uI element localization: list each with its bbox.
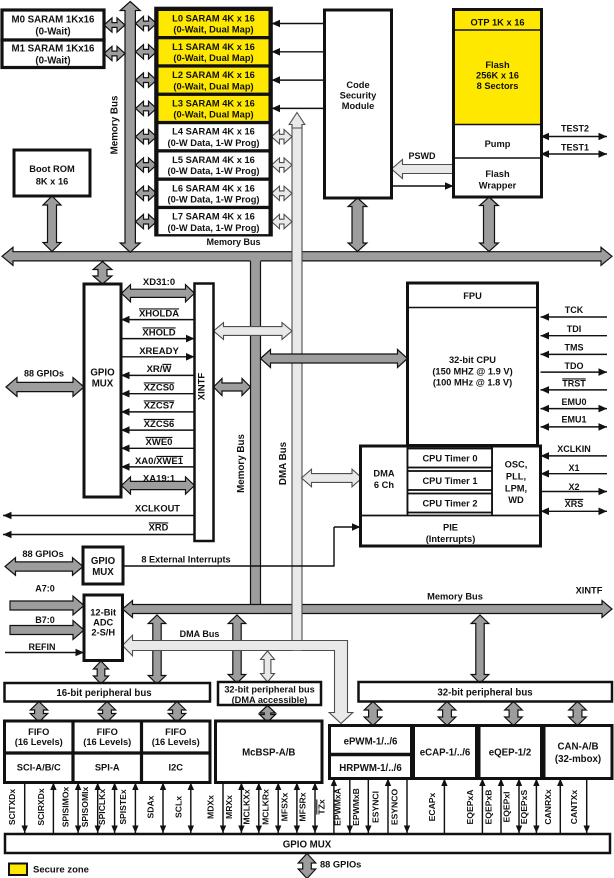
svg-text:(0-Wait): (0-Wait) xyxy=(35,55,70,66)
svg-text:Flash: Flash xyxy=(485,169,510,179)
svg-text:XA19:1: XA19:1 xyxy=(143,474,176,485)
svg-text:Boot ROM: Boot ROM xyxy=(29,164,75,174)
svg-text:(0-Wait, Dual Map): (0-Wait, Dual Map) xyxy=(173,25,253,35)
svg-text:(0-Wait, Dual Map): (0-Wait, Dual Map) xyxy=(173,81,253,91)
svg-text:88 GPIOs: 88 GPIOs xyxy=(24,369,64,379)
svg-text:GPIO: GPIO xyxy=(91,556,116,567)
svg-text:eQEP-1/2: eQEP-1/2 xyxy=(489,748,532,759)
svg-text:MCLKXx: MCLKXx xyxy=(241,789,251,825)
svg-text:ESYNCO: ESYNCO xyxy=(390,789,400,826)
svg-text:(0-W Data, 1-W Prog): (0-W Data, 1-W Prog) xyxy=(168,166,260,176)
svg-text:L1 SARAM 4K x 16: L1 SARAM 4K x 16 xyxy=(172,42,255,52)
svg-text:L7 SARAM 4K x 16: L7 SARAM 4K x 16 xyxy=(172,212,255,222)
svg-text:Memory Bus: Memory Bus xyxy=(236,434,247,493)
svg-text:A7:0: A7:0 xyxy=(35,584,55,594)
svg-text:MFSXx: MFSXx xyxy=(279,792,289,821)
svg-text:Flash: Flash xyxy=(485,60,510,70)
svg-text:(0-W Data, 1-W Prog): (0-W Data, 1-W Prog) xyxy=(168,138,260,148)
svg-text:(0-W Data, 1-W Prog): (0-W Data, 1-W Prog) xyxy=(168,195,260,205)
svg-text:SPISTEx: SPISTEx xyxy=(118,789,128,825)
svg-text:XCLKOUT: XCLKOUT xyxy=(135,504,180,514)
svg-text:OSC,: OSC, xyxy=(505,459,528,469)
svg-text:8 Sectors: 8 Sectors xyxy=(477,81,519,91)
svg-text:X1: X1 xyxy=(568,463,579,473)
svg-text:88 GPIOs: 88 GPIOs xyxy=(320,860,361,870)
svg-text:TDO: TDO xyxy=(565,361,584,371)
svg-text:XWE0: XWE0 xyxy=(146,437,173,448)
svg-text:LPM,: LPM, xyxy=(505,483,527,493)
svg-text:FIFO: FIFO xyxy=(28,727,49,737)
svg-text:CPU Timer 0: CPU Timer 0 xyxy=(422,453,477,463)
svg-text:REFIN: REFIN xyxy=(29,642,56,652)
svg-text:PIE: PIE xyxy=(443,522,458,532)
svg-text:EMU1: EMU1 xyxy=(561,415,586,425)
svg-text:ESYNCI: ESYNCI xyxy=(371,791,381,823)
svg-text:8K x 16: 8K x 16 xyxy=(36,176,69,186)
svg-text:32-bit peripheral bus: 32-bit peripheral bus xyxy=(224,685,314,695)
svg-text:(0-Wait): (0-Wait) xyxy=(35,26,70,37)
svg-text:L5 SARAM 4K x 16: L5 SARAM 4K x 16 xyxy=(172,155,255,165)
svg-text:16-bit peripheral bus: 16-bit peripheral bus xyxy=(56,688,151,699)
svg-text:FIFO: FIFO xyxy=(97,727,118,737)
svg-text:EQEPxS: EQEPxS xyxy=(519,790,529,825)
svg-text:XZCS0: XZCS0 xyxy=(144,383,175,394)
svg-text:2-S/H: 2-S/H xyxy=(91,628,115,638)
svg-text:FPU: FPU xyxy=(463,291,482,301)
svg-text:XHOLDA: XHOLDA xyxy=(139,309,179,320)
svg-text:Memory Bus: Memory Bus xyxy=(110,95,121,154)
svg-text:DMA Bus: DMA Bus xyxy=(180,629,220,639)
svg-text:HRPWM-1/../6: HRPWM-1/../6 xyxy=(339,763,402,774)
svg-text:6 Ch: 6 Ch xyxy=(374,480,394,490)
svg-text:(16 Levels): (16 Levels) xyxy=(152,737,200,747)
svg-text:GPIO MUX: GPIO MUX xyxy=(283,839,332,850)
svg-text:ADC: ADC xyxy=(93,618,113,628)
svg-text:EPWMxB: EPWMxB xyxy=(351,788,361,826)
svg-text:ECAPx: ECAPx xyxy=(427,792,437,821)
svg-text:FIFO: FIFO xyxy=(165,727,186,737)
svg-text:PLL,: PLL, xyxy=(506,471,526,481)
svg-text:PSWD: PSWD xyxy=(409,151,437,161)
svg-text:OTP 1K x 16: OTP 1K x 16 xyxy=(470,17,524,27)
svg-text:XRS: XRS xyxy=(565,499,584,509)
svg-text:ePWM-1/../6: ePWM-1/../6 xyxy=(344,737,398,748)
svg-text:EQEPxA: EQEPxA xyxy=(465,790,475,825)
svg-text:(100 MHz @ 1.8 V): (100 MHz @ 1.8 V) xyxy=(433,378,512,388)
svg-text:Code: Code xyxy=(346,80,369,90)
svg-text:(DMA accessible): (DMA accessible) xyxy=(232,695,308,705)
svg-text:MDXx: MDXx xyxy=(206,795,216,819)
svg-text:SCITXDx: SCITXDx xyxy=(7,789,17,826)
svg-text:32-bit CPU: 32-bit CPU xyxy=(449,355,496,365)
svg-text:SPISIMOx: SPISIMOx xyxy=(61,786,71,827)
svg-text:(0-Wait, Dual Map): (0-Wait, Dual Map) xyxy=(173,53,253,63)
svg-text:XINTF: XINTF xyxy=(576,586,603,596)
svg-text:DMA: DMA xyxy=(373,468,394,478)
svg-text:L6 SARAM 4K x 16: L6 SARAM 4K x 16 xyxy=(172,183,255,193)
svg-text:8 External Interrupts: 8 External Interrupts xyxy=(141,555,230,565)
svg-text:XR/W: XR/W xyxy=(147,364,172,375)
svg-text:SCLx: SCLx xyxy=(173,796,183,818)
svg-text:XA0/XWE1: XA0/XWE1 xyxy=(135,456,184,467)
svg-text:88 GPIOs: 88 GPIOs xyxy=(22,549,63,559)
svg-text:XRD: XRD xyxy=(149,523,169,533)
svg-text:EPWMxA: EPWMxA xyxy=(332,788,342,826)
svg-text:CANTXx: CANTXx xyxy=(569,790,579,825)
svg-text:XZCS6: XZCS6 xyxy=(144,419,175,430)
svg-text:256K x 16: 256K x 16 xyxy=(476,70,519,80)
svg-text:I2C: I2C xyxy=(169,762,184,772)
svg-text:eCAP-1/../6: eCAP-1/../6 xyxy=(420,748,471,759)
svg-text:EQEPxI: EQEPxI xyxy=(502,791,512,822)
svg-text:EMU0: EMU0 xyxy=(561,397,586,407)
svg-text:XHOLD: XHOLD xyxy=(142,328,175,339)
svg-text:Module: Module xyxy=(342,101,375,111)
svg-text:(32-mbox): (32-mbox) xyxy=(555,754,601,765)
svg-text:SCIRXDx: SCIRXDx xyxy=(36,788,46,825)
svg-text:CPU Timer 1: CPU Timer 1 xyxy=(422,476,477,486)
svg-text:32-bit peripheral bus: 32-bit peripheral bus xyxy=(437,687,532,698)
svg-text:SDAx: SDAx xyxy=(146,795,156,818)
svg-text:MCLKRx: MCLKRx xyxy=(261,789,271,825)
svg-text:12-Bit: 12-Bit xyxy=(90,608,116,618)
svg-text:(150 MHZ @ 1.9 V): (150 MHZ @ 1.9 V) xyxy=(432,366,512,376)
svg-text:L3 SARAM 4K x 16: L3 SARAM 4K x 16 xyxy=(172,98,255,108)
svg-text:X2: X2 xyxy=(568,482,579,492)
svg-text:(16 Levels): (16 Levels) xyxy=(15,737,63,747)
svg-text:XZCS7: XZCS7 xyxy=(144,401,175,412)
svg-text:SCI-A/B/C: SCI-A/B/C xyxy=(17,762,61,772)
svg-text:XREADY: XREADY xyxy=(139,346,179,357)
svg-text:(Interrupts): (Interrupts) xyxy=(426,534,476,544)
svg-text:L0 SARAM 4K x 16: L0 SARAM 4K x 16 xyxy=(172,14,255,24)
svg-text:WD: WD xyxy=(508,495,524,505)
svg-text:CANRXx: CANRXx xyxy=(543,789,553,825)
svg-text:McBSP-A/B: McBSP-A/B xyxy=(242,748,295,759)
svg-text:SPI-A: SPI-A xyxy=(95,762,120,772)
svg-text:Secure zone: Secure zone xyxy=(33,865,89,876)
svg-text:TRST: TRST xyxy=(562,379,586,389)
svg-text:(0-Wait, Dual Map): (0-Wait, Dual Map) xyxy=(173,110,253,120)
svg-text:XINTF: XINTF xyxy=(197,373,208,401)
svg-text:MUX: MUX xyxy=(92,567,114,578)
svg-text:TEST1: TEST1 xyxy=(561,143,589,153)
svg-text:Pump: Pump xyxy=(485,139,511,149)
svg-text:GPIO: GPIO xyxy=(90,367,115,378)
svg-text:MUX: MUX xyxy=(92,378,114,389)
svg-text:MRXx: MRXx xyxy=(224,795,234,819)
svg-text:CPU Timer 2: CPU Timer 2 xyxy=(422,498,477,508)
svg-text:EQEPxB: EQEPxB xyxy=(484,790,494,825)
svg-text:XCLKIN: XCLKIN xyxy=(557,444,591,454)
svg-text:TDI: TDI xyxy=(567,324,582,334)
svg-text:XD31:0: XD31:0 xyxy=(143,277,175,288)
svg-text:DMA Bus: DMA Bus xyxy=(278,441,289,485)
svg-text:MFSRx: MFSRx xyxy=(298,792,308,821)
svg-text:CAN-A/B: CAN-A/B xyxy=(558,742,599,753)
svg-text:L4 SARAM 4K x 16: L4 SARAM 4K x 16 xyxy=(172,127,255,137)
svg-text:TCK: TCK xyxy=(565,305,584,315)
svg-text:Security: Security xyxy=(340,90,378,100)
svg-text:TZx: TZx xyxy=(316,799,326,814)
svg-text:(16 Levels): (16 Levels) xyxy=(83,737,131,747)
svg-text:Memory Bus: Memory Bus xyxy=(206,237,260,247)
svg-text:M1 SARAM 1Kx16: M1 SARAM 1Kx16 xyxy=(12,43,96,54)
svg-text:L2 SARAM 4K x 16: L2 SARAM 4K x 16 xyxy=(172,70,255,80)
svg-text:(0-W Data, 1-W Prog): (0-W Data, 1-W Prog) xyxy=(168,223,260,233)
svg-text:SPISOMIx: SPISOMIx xyxy=(80,786,90,827)
svg-text:Memory Bus: Memory Bus xyxy=(427,592,483,602)
svg-text:TEST2: TEST2 xyxy=(561,124,589,134)
svg-text:SPICLKx: SPICLKx xyxy=(97,789,107,826)
svg-text:Wrapper: Wrapper xyxy=(479,180,517,190)
svg-text:M0 SARAM 1Kx16: M0 SARAM 1Kx16 xyxy=(12,14,96,25)
svg-text:B7:0: B7:0 xyxy=(35,615,55,625)
svg-text:TMS: TMS xyxy=(565,343,584,353)
